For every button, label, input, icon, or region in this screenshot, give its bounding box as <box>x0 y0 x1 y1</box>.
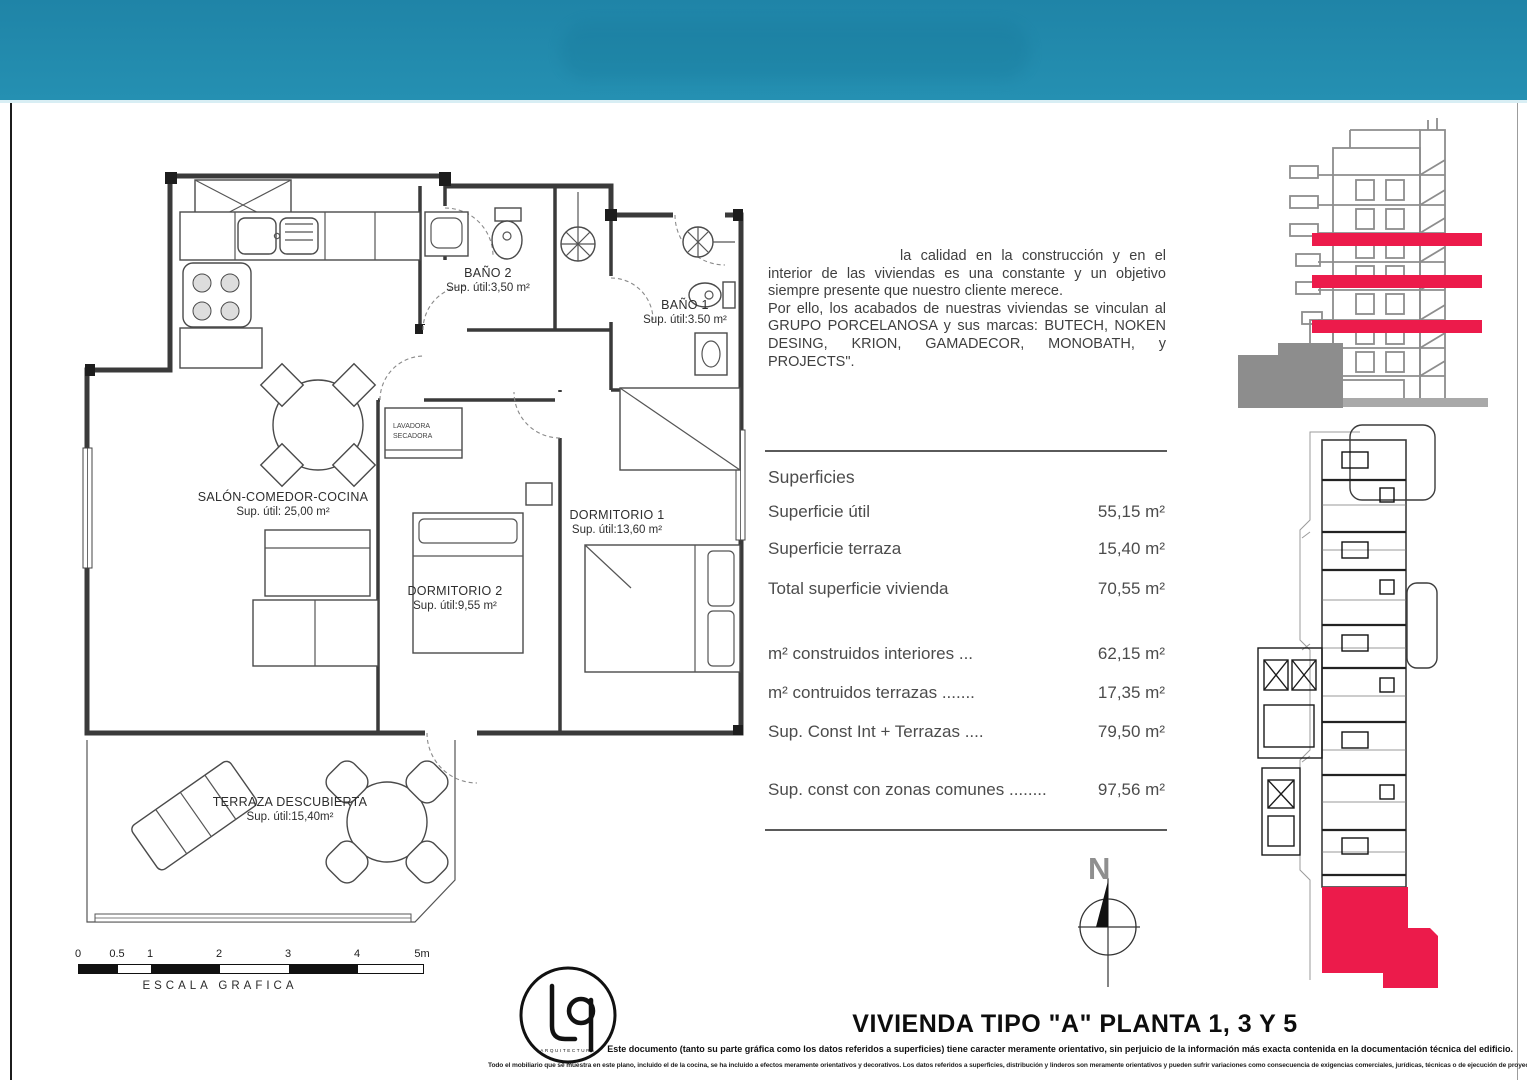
header-band <box>0 0 1527 100</box>
closet-label-2: SECADORA <box>393 433 433 440</box>
table-row: m² construidos interiores ... 62,15 m² <box>768 644 1165 666</box>
page-frame-left <box>10 103 12 1080</box>
table-row: Sup. Const Int + Terrazas .... 79,50 m² <box>768 722 1165 744</box>
building-key-plan <box>1250 420 1527 1020</box>
graphic-scale: 0 0.5 1 2 3 4 5m ESCALA GRAFICA <box>70 948 435 1000</box>
room-label-terraza: TERRAZA DESCUBIERTA Sup. útil:15,40m² <box>213 795 368 823</box>
hob-icon <box>183 263 251 327</box>
floorplan-drawing: LAVADORA SECADORA <box>75 148 765 948</box>
scale-caption: ESCALA GRAFICA <box>70 980 370 992</box>
architect-logo: ARQUITECTURA <box>505 950 635 1080</box>
room-label-bano2: BAÑO 2 Sup. útil:3,50 m² <box>446 266 530 294</box>
header-underline <box>0 100 1527 103</box>
room-label-dorm1: DORMITORIO 1 Sup. útil:13,60 m² <box>569 508 664 536</box>
plan-title: VIVIENDA TIPO "A" PLANTA 1, 3 Y 5 <box>850 1010 1300 1039</box>
highlighted-unit <box>1322 887 1438 988</box>
compass: N <box>1055 855 1175 1000</box>
shower-room <box>561 192 595 261</box>
bed-dorm2 <box>413 483 552 653</box>
kitchen-area <box>180 180 420 368</box>
apartment-floorplan: LAVADORA SECADORA <box>75 148 765 948</box>
closet-label-1: LAVADORA <box>393 423 430 430</box>
room-label-dorm2: DORMITORIO 2 Sup. útil:9,55 m² <box>407 584 502 612</box>
table-row: Superficie terraza 15,40 m² <box>768 539 1165 561</box>
wardrobe-dorm1 <box>620 388 740 470</box>
room-label-bano1: BAÑO 1 Sup. útil:3.50 m² <box>643 298 727 326</box>
north-needle-icon <box>1096 881 1108 927</box>
units-strip <box>1322 425 1437 887</box>
scale-tick: 5m <box>414 948 429 960</box>
quality-paragraph-2: Por ello, los acabados de nuestras vivie… <box>768 301 1166 371</box>
table-row: m² contruidos terrazas ....... 17,35 m² <box>768 683 1165 705</box>
plan-sheet-page: LAVADORA SECADORA <box>0 0 1527 1080</box>
disclaimer-line-2: Todo el mobiliario que se muestra en est… <box>488 1062 1513 1069</box>
dining-table <box>261 364 375 486</box>
compass-icon <box>1055 855 1175 1000</box>
toilet-tank-icon <box>495 208 521 221</box>
quality-paragraph: la calidad en la construcción y en el in… <box>768 248 1166 371</box>
compass-north-label: N <box>1088 851 1110 887</box>
stair-core <box>1258 648 1322 855</box>
table-row: Superficie útil 55,15 m² <box>768 502 1165 524</box>
scale-tick: 0 <box>75 948 81 960</box>
disclaimer-line-1: Este documento (tanto su parte gráfica c… <box>420 1044 1513 1054</box>
scale-tick: 2 <box>216 948 222 960</box>
quality-paragraph-1: la calidad en la construcción y en el in… <box>768 248 1166 301</box>
elevation-drawing <box>1238 118 1527 418</box>
lp-logo-icon: ARQUITECTURA <box>505 950 635 1080</box>
table-row: Total superficie vivienda 70,55 m² <box>768 579 1165 601</box>
table-row: Sup. const con zonas comunes ........ 97… <box>768 780 1165 802</box>
scale-tick: 4 <box>354 948 360 960</box>
laundry-closet: LAVADORA SECADORA <box>385 408 462 458</box>
scale-tick: 1 <box>147 948 153 960</box>
sofa <box>253 530 378 666</box>
header-watermark <box>560 22 1030 80</box>
nightstand <box>526 483 552 505</box>
bed-dorm1 <box>585 545 740 672</box>
building-elevation <box>1238 118 1527 418</box>
table-rule-bottom <box>765 829 1167 831</box>
sink-icon <box>695 333 727 375</box>
scale-bar <box>78 964 424 974</box>
scale-tick: 3 <box>285 948 291 960</box>
bathroom2-fixtures <box>425 208 522 259</box>
kitchen-counter-low <box>180 328 262 368</box>
table-rule-top <box>765 450 1167 452</box>
room-label-salon: SALÓN-COMEDOR-COCINA Sup. útil: 25,00 m² <box>198 490 369 518</box>
keyplan-drawing <box>1250 420 1527 1020</box>
surfaces-title: Superficies <box>768 467 855 488</box>
scale-tick: 0.5 <box>109 948 124 960</box>
highlighted-floor-bands <box>1312 233 1482 333</box>
surfaces-table: Superficies Superficie útil 55,15 m² Sup… <box>765 445 1167 840</box>
